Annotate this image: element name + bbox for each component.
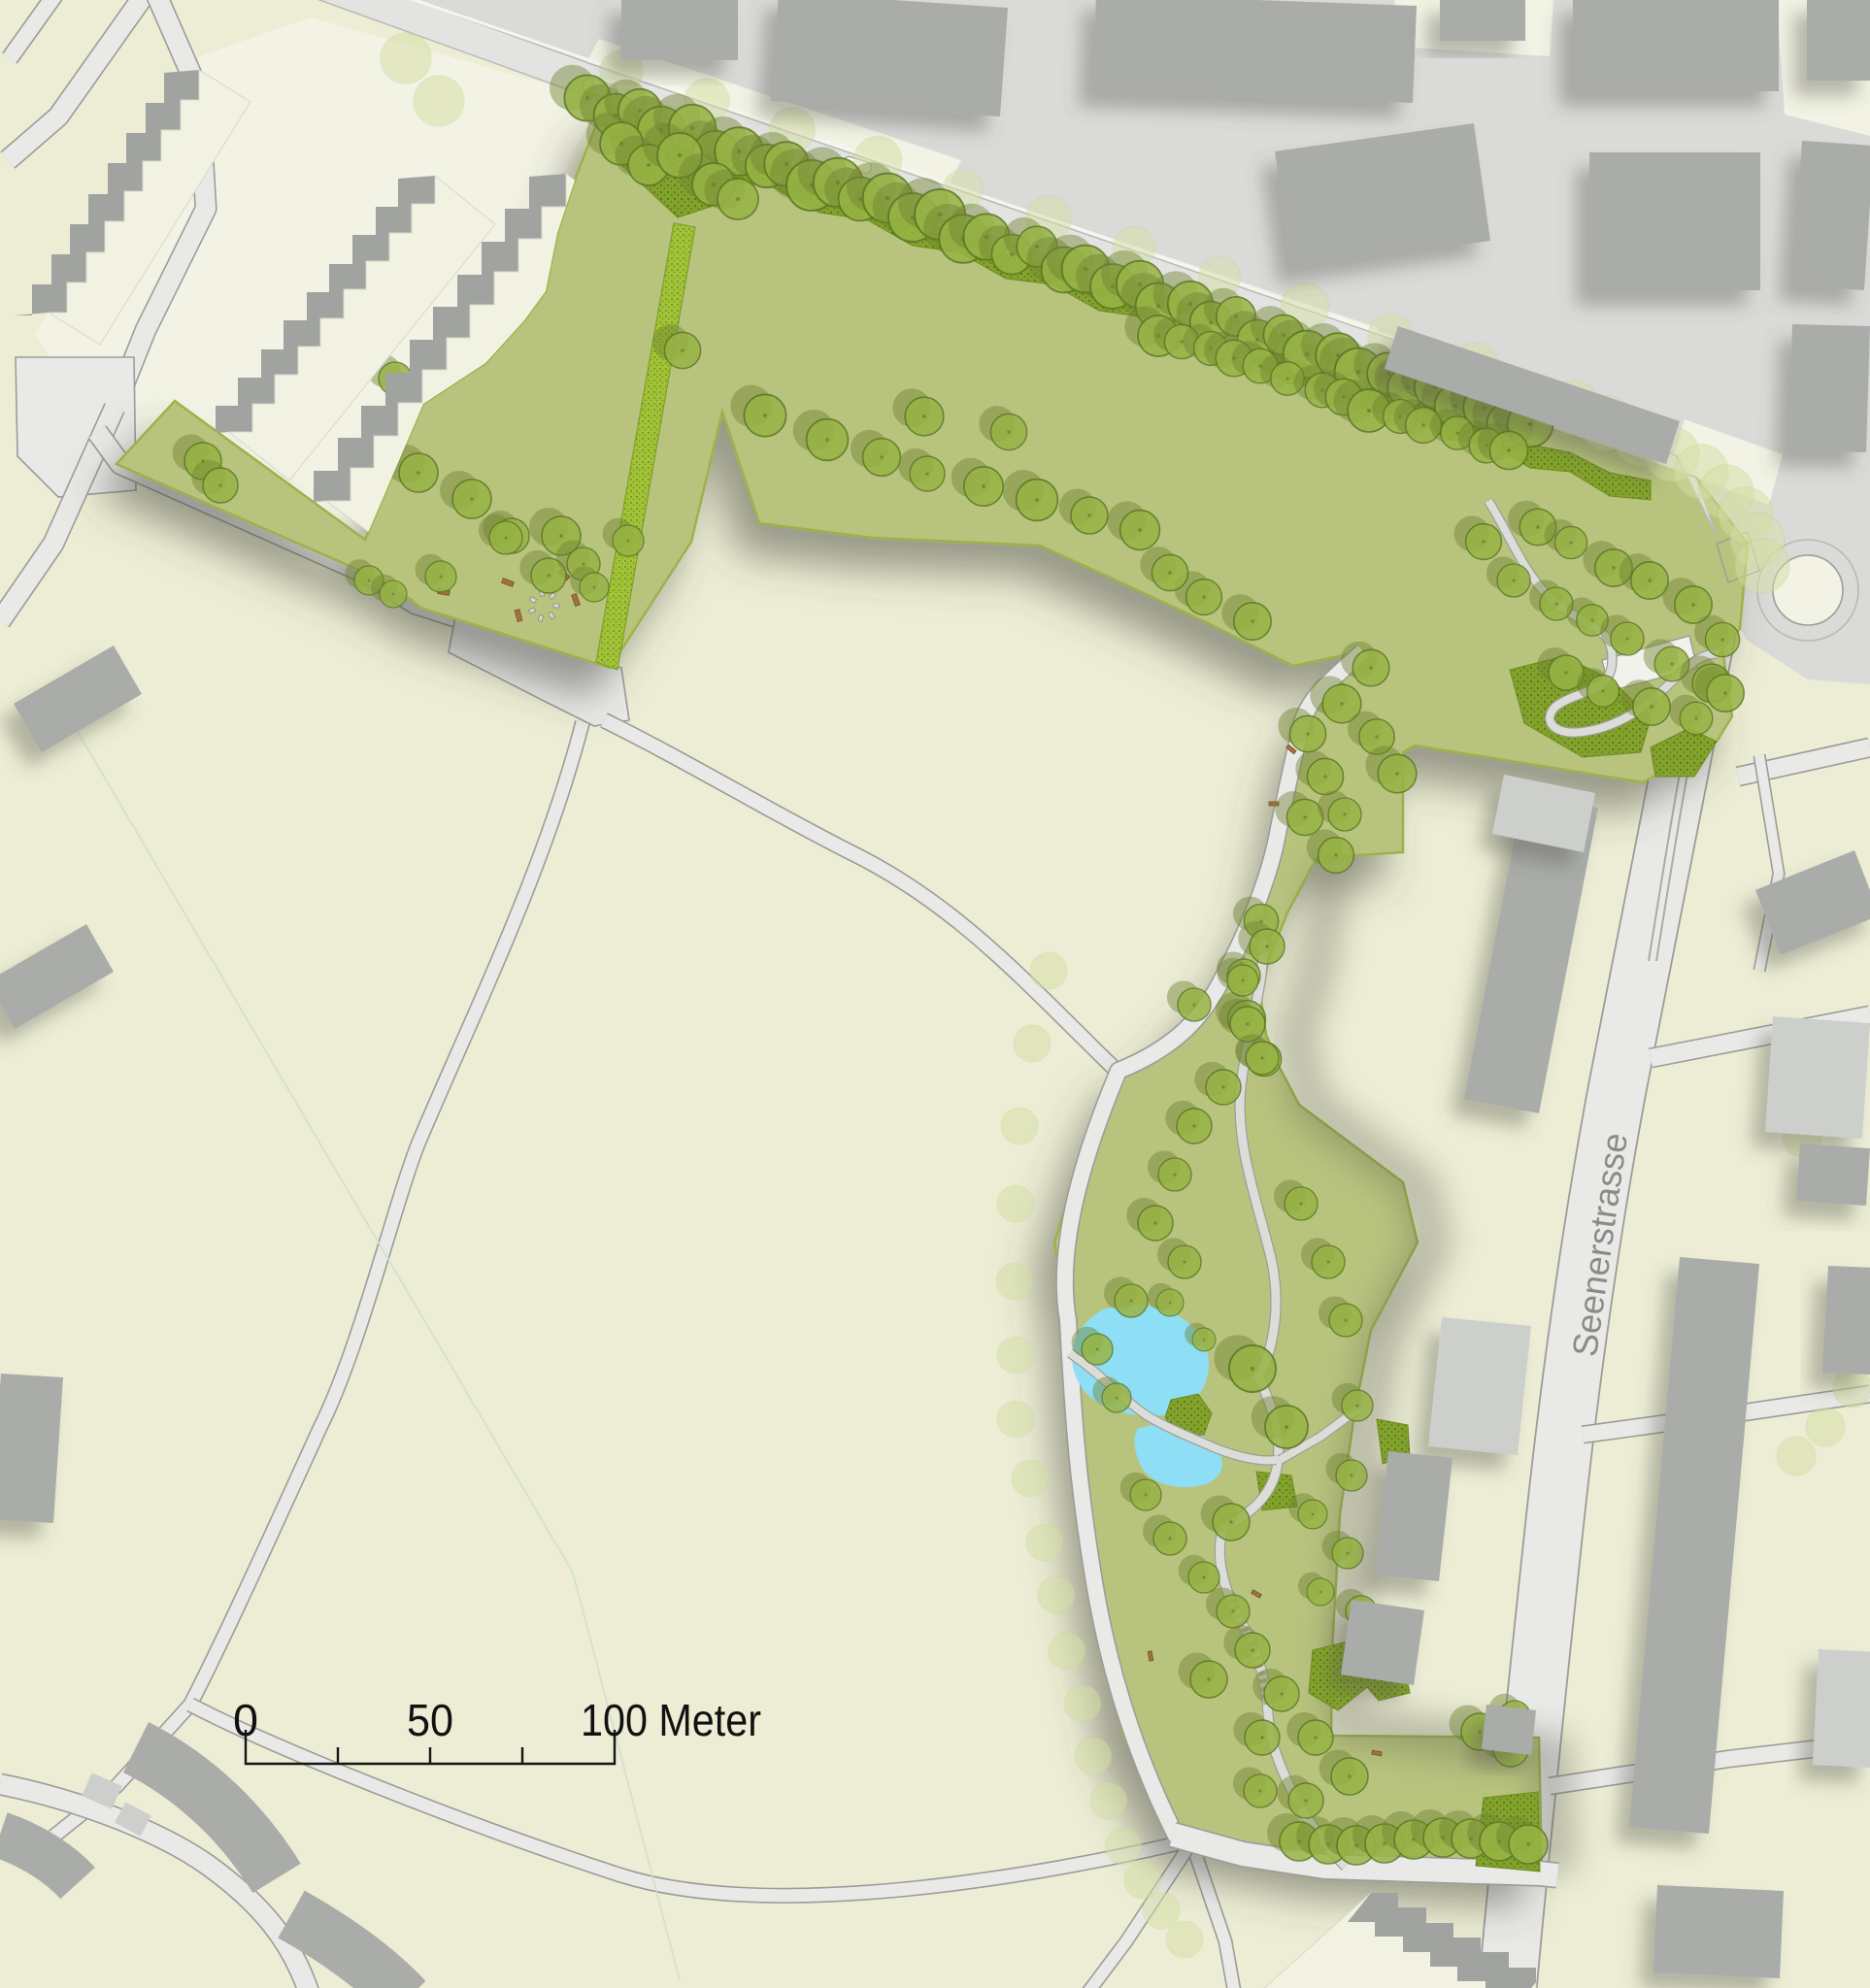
svg-text:0: 0 <box>233 1695 258 1745</box>
svg-text:100 Meter: 100 Meter <box>581 1695 761 1745</box>
svg-text:50: 50 <box>407 1695 453 1745</box>
